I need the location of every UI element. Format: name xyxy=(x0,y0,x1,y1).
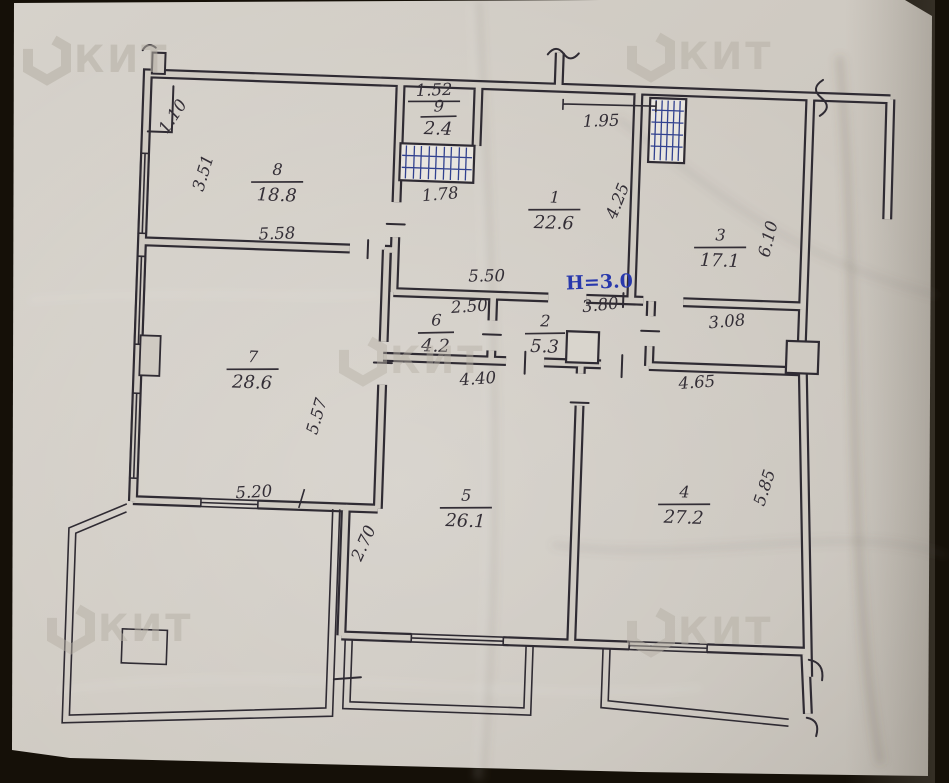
room-4-area: 27.2 xyxy=(662,507,704,529)
kit-watermark-text: КИТ xyxy=(390,339,485,382)
dim-2-50: 2.50 xyxy=(449,296,488,318)
dim-3-80: 3.80 xyxy=(581,294,620,317)
dim-3-08: 3.08 xyxy=(708,310,746,332)
dim-5-20: 5.20 xyxy=(235,481,273,502)
room-8-area: 18.8 xyxy=(256,184,297,206)
column-right-wall xyxy=(786,341,819,374)
room-1-number: 1 xyxy=(549,187,560,206)
room-8-number: 8 xyxy=(272,160,283,179)
dim-1-78: 1.78 xyxy=(421,183,459,205)
room-2-number: 2 xyxy=(539,311,551,330)
floor-plan-photo: 1.52 1.95 1.10 3.51 1.78 4.25 6.10 5.58 … xyxy=(0,0,949,783)
room-2-area: 5.3 xyxy=(530,336,559,358)
floor-plan-svg: 1.52 1.95 1.10 3.51 1.78 4.25 6.10 5.58 … xyxy=(0,0,949,783)
dim-1-95: 1.95 xyxy=(582,111,619,131)
shaft-room3 xyxy=(648,98,686,163)
shaft-room2 xyxy=(566,331,599,363)
kit-watermark-text: КИТ xyxy=(678,610,773,653)
room-5-number: 5 xyxy=(461,486,472,505)
kit-watermark-text: КИТ xyxy=(678,35,773,78)
pier-room7 xyxy=(139,335,160,376)
kit-watermark-text: КИТ xyxy=(74,38,169,81)
room-3-area: 17.1 xyxy=(699,250,740,272)
room-9-area: 2.4 xyxy=(422,118,452,140)
shaft-hall xyxy=(399,143,474,183)
room-7-number: 7 xyxy=(248,347,260,366)
room-7-area: 28.6 xyxy=(231,371,273,393)
room-5-area: 26.1 xyxy=(444,510,486,532)
room-3-number: 3 xyxy=(715,225,726,244)
room-9-number: 9 xyxy=(433,96,444,115)
dim-5-58: 5.58 xyxy=(258,223,295,243)
dim-5-50: 5.50 xyxy=(468,266,505,286)
ceiling-height-note: H=3.0 xyxy=(566,270,634,294)
room-1-area: 22.6 xyxy=(532,212,574,234)
kit-watermark-text: КИТ xyxy=(98,607,193,650)
room-6-number: 6 xyxy=(431,310,442,329)
dim-4-65: 4.65 xyxy=(677,372,716,394)
room-4-number: 4 xyxy=(678,482,690,501)
